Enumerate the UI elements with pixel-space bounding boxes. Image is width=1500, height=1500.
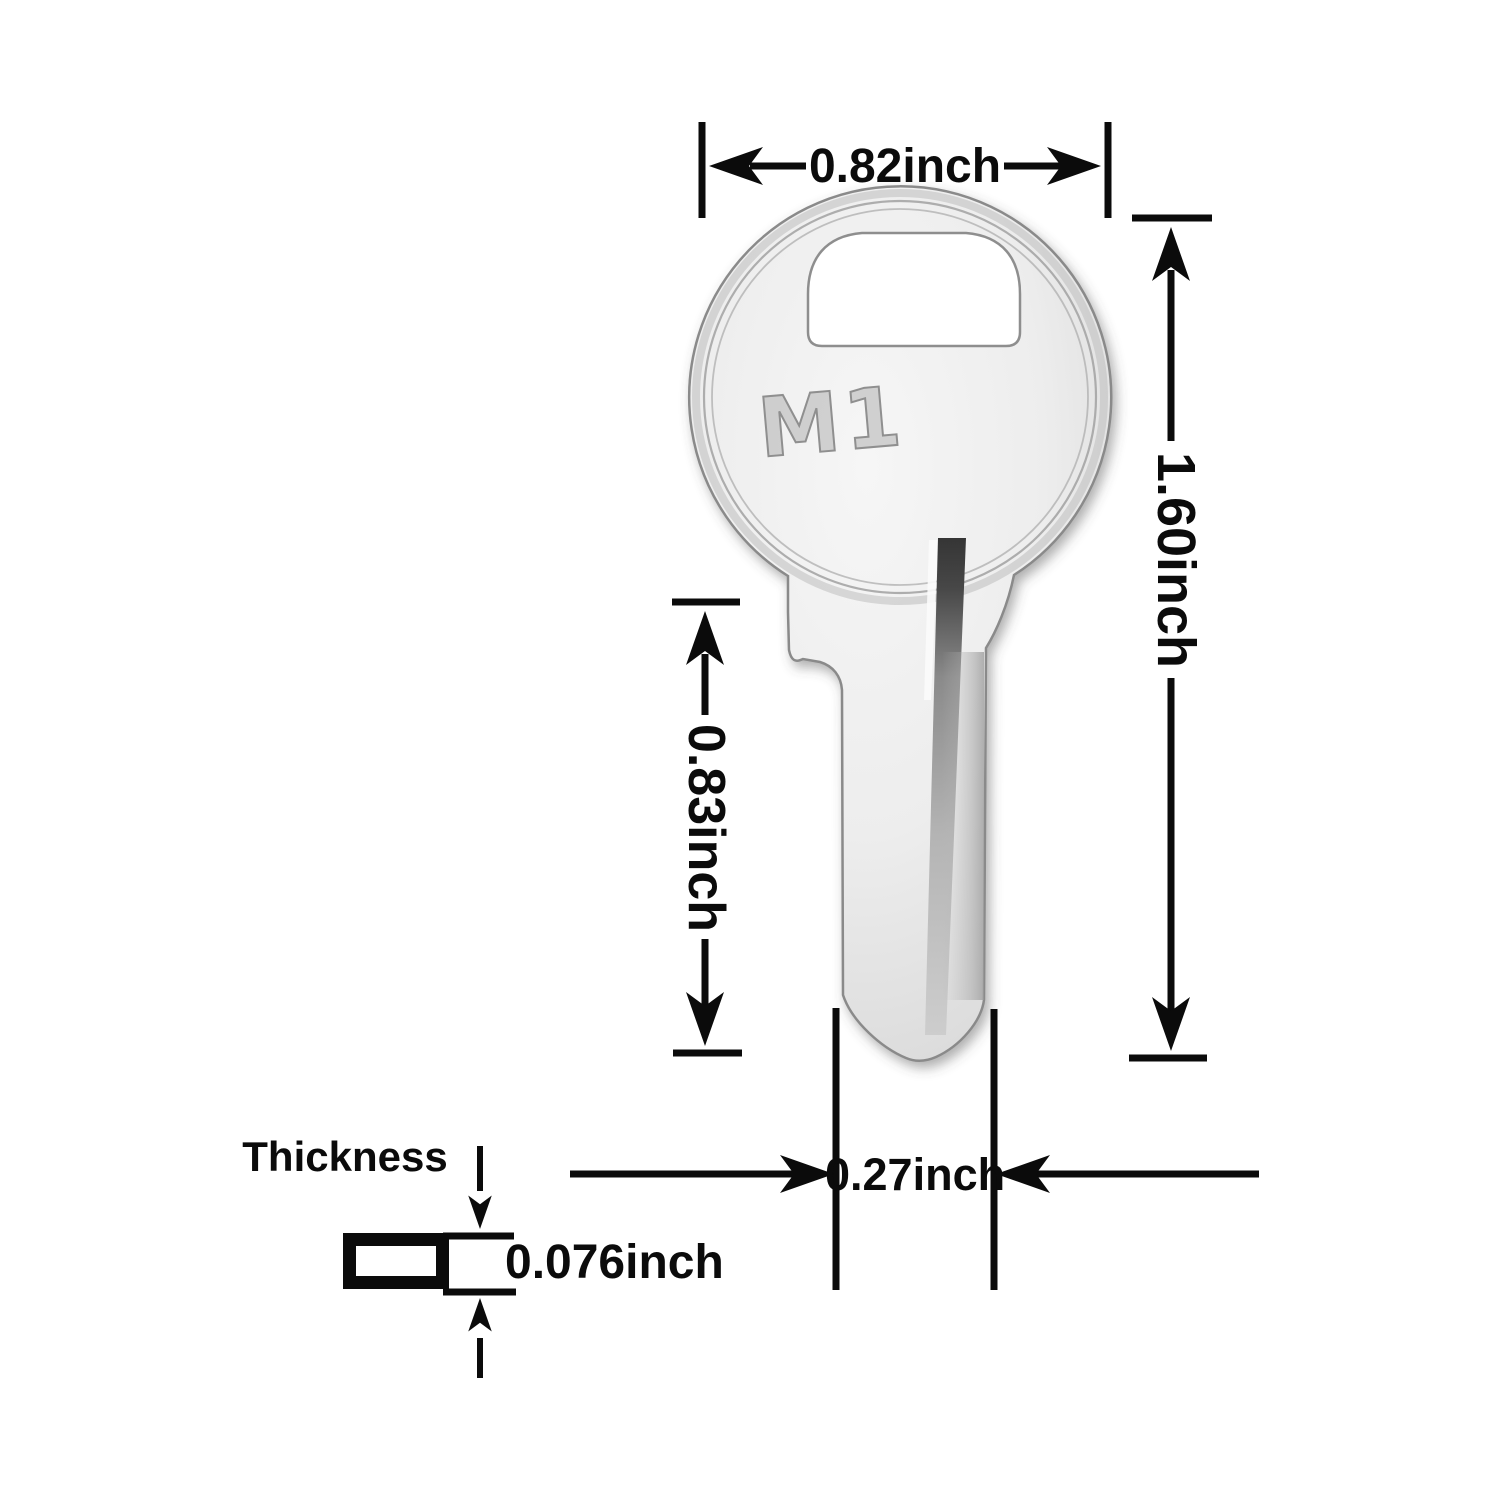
- thickness-value-label: 0.076inch: [505, 1239, 724, 1287]
- cross-section-rect: [350, 1240, 443, 1283]
- key-stamp: M1: [754, 369, 908, 476]
- key-dimension-diagram: M1: [0, 0, 1500, 1500]
- key-blank-figure: M1: [0, 0, 1500, 1500]
- thickness-label: Thickness: [235, 1136, 455, 1178]
- blade-edge-shade: [942, 652, 984, 1000]
- thickness-callout: [350, 1146, 517, 1378]
- blade-width-label: 0.27inch: [825, 1152, 1005, 1197]
- blade-length-label: 0.83inch: [679, 678, 733, 978]
- key-hole: [808, 233, 1020, 346]
- arrowhead-down-icon: [468, 1196, 492, 1229]
- total-length-label: 1.60inch: [1148, 410, 1204, 710]
- arrowhead-up-icon: [468, 1298, 492, 1331]
- head-width-label: 0.82inch: [795, 143, 1015, 191]
- key-blank-image: M1: [689, 186, 1111, 1060]
